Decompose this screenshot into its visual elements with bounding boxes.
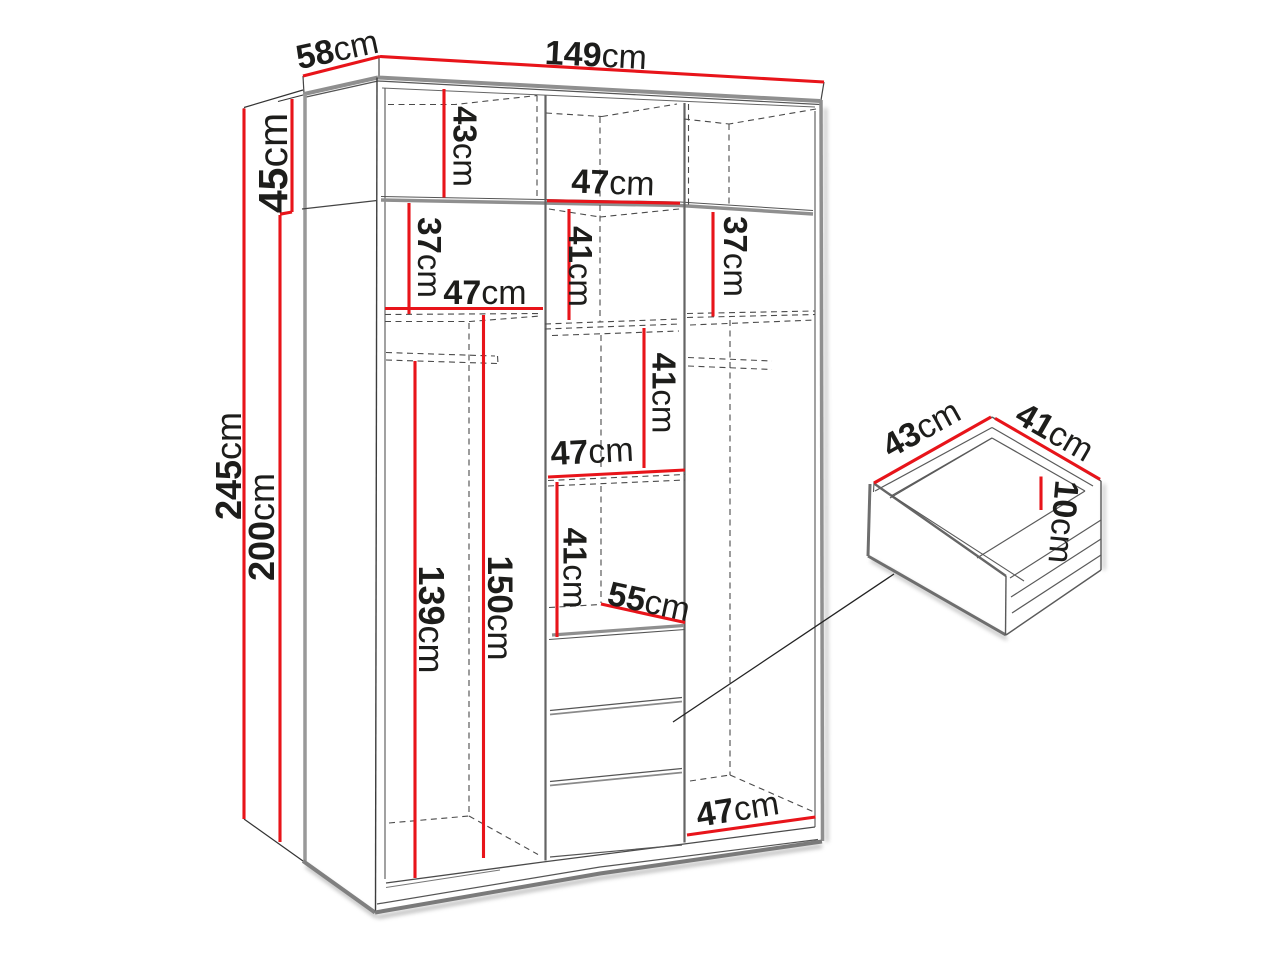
svg-text:139cm: 139cm — [411, 565, 452, 673]
svg-text:149cm: 149cm — [544, 34, 648, 77]
svg-text:200cm: 200cm — [241, 473, 282, 581]
svg-text:37cm: 37cm — [717, 216, 754, 297]
svg-text:10cm: 10cm — [1040, 479, 1085, 565]
svg-text:150cm: 150cm — [480, 555, 519, 660]
svg-text:41cm: 41cm — [562, 226, 599, 307]
svg-text:47cm: 47cm — [443, 274, 526, 312]
svg-text:41cm: 41cm — [557, 528, 594, 609]
svg-text:45cm: 45cm — [250, 113, 296, 213]
svg-text:43cm: 43cm — [447, 106, 484, 187]
svg-text:47cm: 47cm — [571, 163, 655, 204]
svg-text:47cm: 47cm — [550, 431, 635, 473]
svg-text:41cm: 41cm — [646, 353, 683, 434]
